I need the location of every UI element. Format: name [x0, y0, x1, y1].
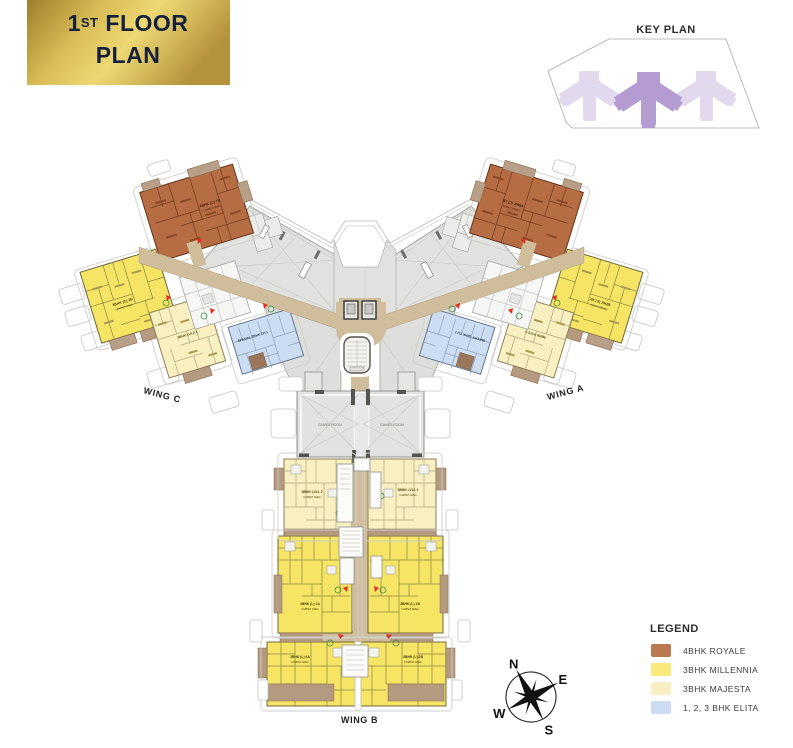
svg-text:3BHK MAJESTA: 3BHK MAJESTA: [683, 684, 751, 694]
svg-text:3BHK (L) 1B: 3BHK (L) 1B: [400, 602, 420, 606]
svg-text:W: W: [493, 706, 506, 721]
svg-text:CARPET AREA: CARPET AREA: [404, 661, 422, 664]
svg-text:CARPET AREA: CARPET AREA: [303, 496, 321, 499]
svg-text:GAMES ROOM: GAMES ROOM: [380, 423, 404, 427]
svg-text:3BHK (L) 2B: 3BHK (L) 2B: [403, 655, 423, 659]
svg-text:WING B: WING B: [341, 715, 378, 725]
svg-text:N: N: [509, 656, 518, 671]
svg-text:4BHK ROYALE: 4BHK ROYALE: [683, 646, 746, 656]
svg-text:3BHK LVL1 1: 3BHK LVL1 1: [397, 488, 418, 492]
svg-text:3BHK (L) 4A: 3BHK (L) 4A: [290, 655, 310, 659]
svg-text:GAMES ROOM: GAMES ROOM: [318, 423, 342, 427]
svg-text:CARPET AREA: CARPET AREA: [291, 661, 309, 664]
svg-text:1, 2, 3 BHK ELITA: 1, 2, 3 BHK ELITA: [683, 703, 759, 713]
svg-text:E: E: [558, 672, 567, 687]
svg-text:PLAN: PLAN: [96, 42, 161, 68]
svg-text:S: S: [545, 723, 554, 738]
svg-text:LEGEND: LEGEND: [650, 623, 699, 635]
svg-text:3BHK MILLENNIA: 3BHK MILLENNIA: [683, 665, 758, 675]
svg-text:CARPET AREA: CARPET AREA: [401, 608, 419, 611]
svg-text:3BHK LVL1 2: 3BHK LVL1 2: [301, 490, 322, 494]
svg-text:CARPET AREA: CARPET AREA: [301, 608, 319, 611]
svg-text:CARPET AREA: CARPET AREA: [399, 494, 417, 497]
svg-text:KEY PLAN: KEY PLAN: [636, 24, 695, 36]
svg-text:3BHK (L) 1A: 3BHK (L) 1A: [300, 602, 320, 606]
